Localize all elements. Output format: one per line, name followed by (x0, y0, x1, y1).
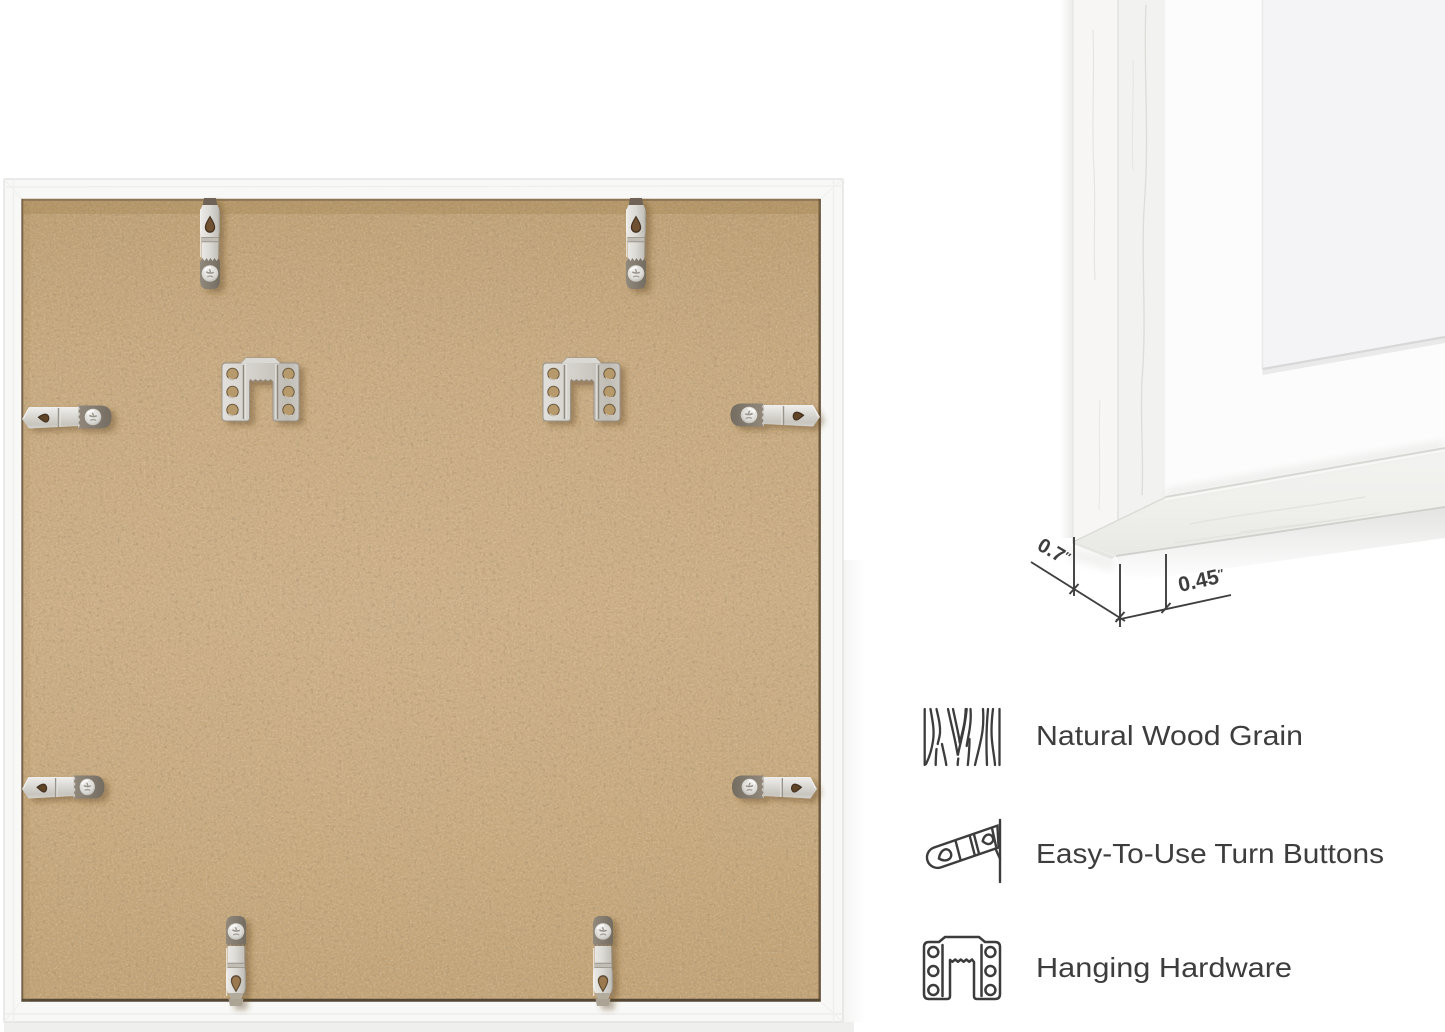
svg-text:Natural Wood Grain: Natural Wood Grain (1036, 720, 1303, 751)
svg-text:Hanging Hardware: Hanging Hardware (1036, 952, 1292, 983)
svg-text:Easy-To-Use Turn Buttons: Easy-To-Use Turn Buttons (1036, 838, 1384, 869)
